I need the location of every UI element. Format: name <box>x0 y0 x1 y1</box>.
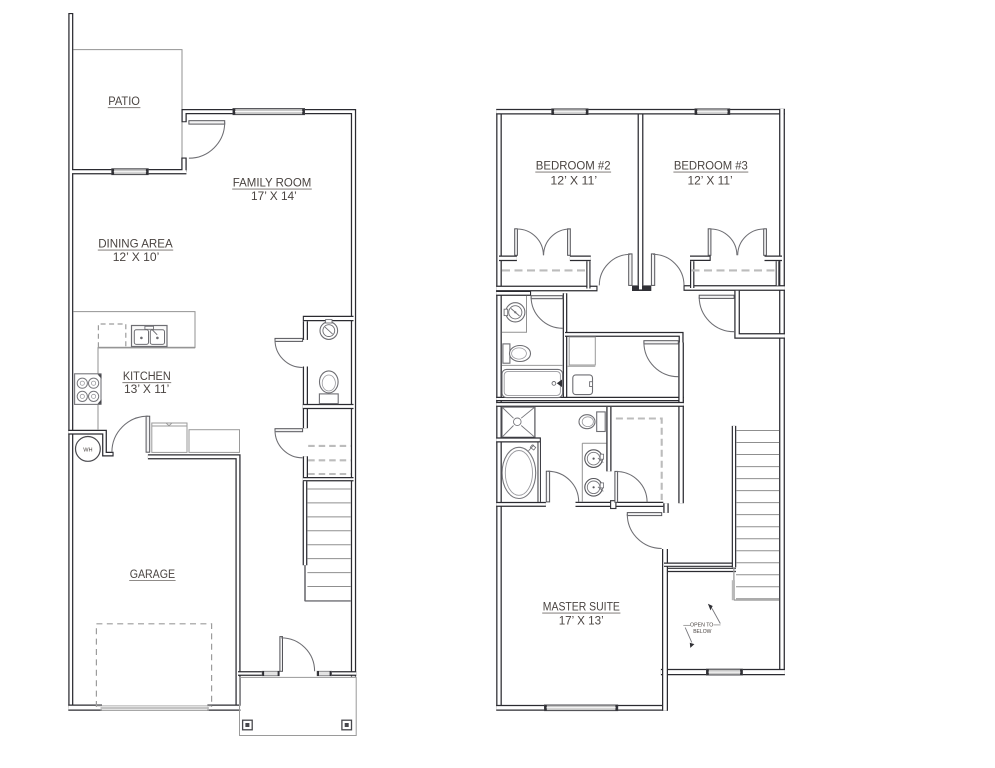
svg-text:WH: WH <box>83 447 92 453</box>
svg-text:17’ X 14’: 17’ X 14’ <box>251 189 297 203</box>
svg-text:BEDROOM #2: BEDROOM #2 <box>536 159 611 173</box>
svg-text:BELOW: BELOW <box>693 629 712 635</box>
svg-text:12’ X 10’: 12’ X 10’ <box>113 250 160 264</box>
svg-text:KITCHEN: KITCHEN <box>123 369 171 383</box>
svg-text:12’ X 11’: 12’ X 11’ <box>550 174 597 188</box>
svg-text:PATIO: PATIO <box>108 94 140 108</box>
svg-text:FAMILY ROOM: FAMILY ROOM <box>233 176 311 190</box>
svg-text:13’ X 11’: 13’ X 11’ <box>124 382 169 396</box>
svg-text:MASTER SUITE: MASTER SUITE <box>543 600 620 614</box>
svg-text:OPEN TO: OPEN TO <box>690 622 714 628</box>
svg-text:12’ X 11’: 12’ X 11’ <box>688 174 733 188</box>
svg-text:DINING AREA: DINING AREA <box>98 237 173 251</box>
svg-text:GARAGE: GARAGE <box>130 567 175 581</box>
svg-text:17’ X 13’: 17’ X 13’ <box>559 614 604 628</box>
svg-text:BEDROOM #3: BEDROOM #3 <box>674 159 748 173</box>
